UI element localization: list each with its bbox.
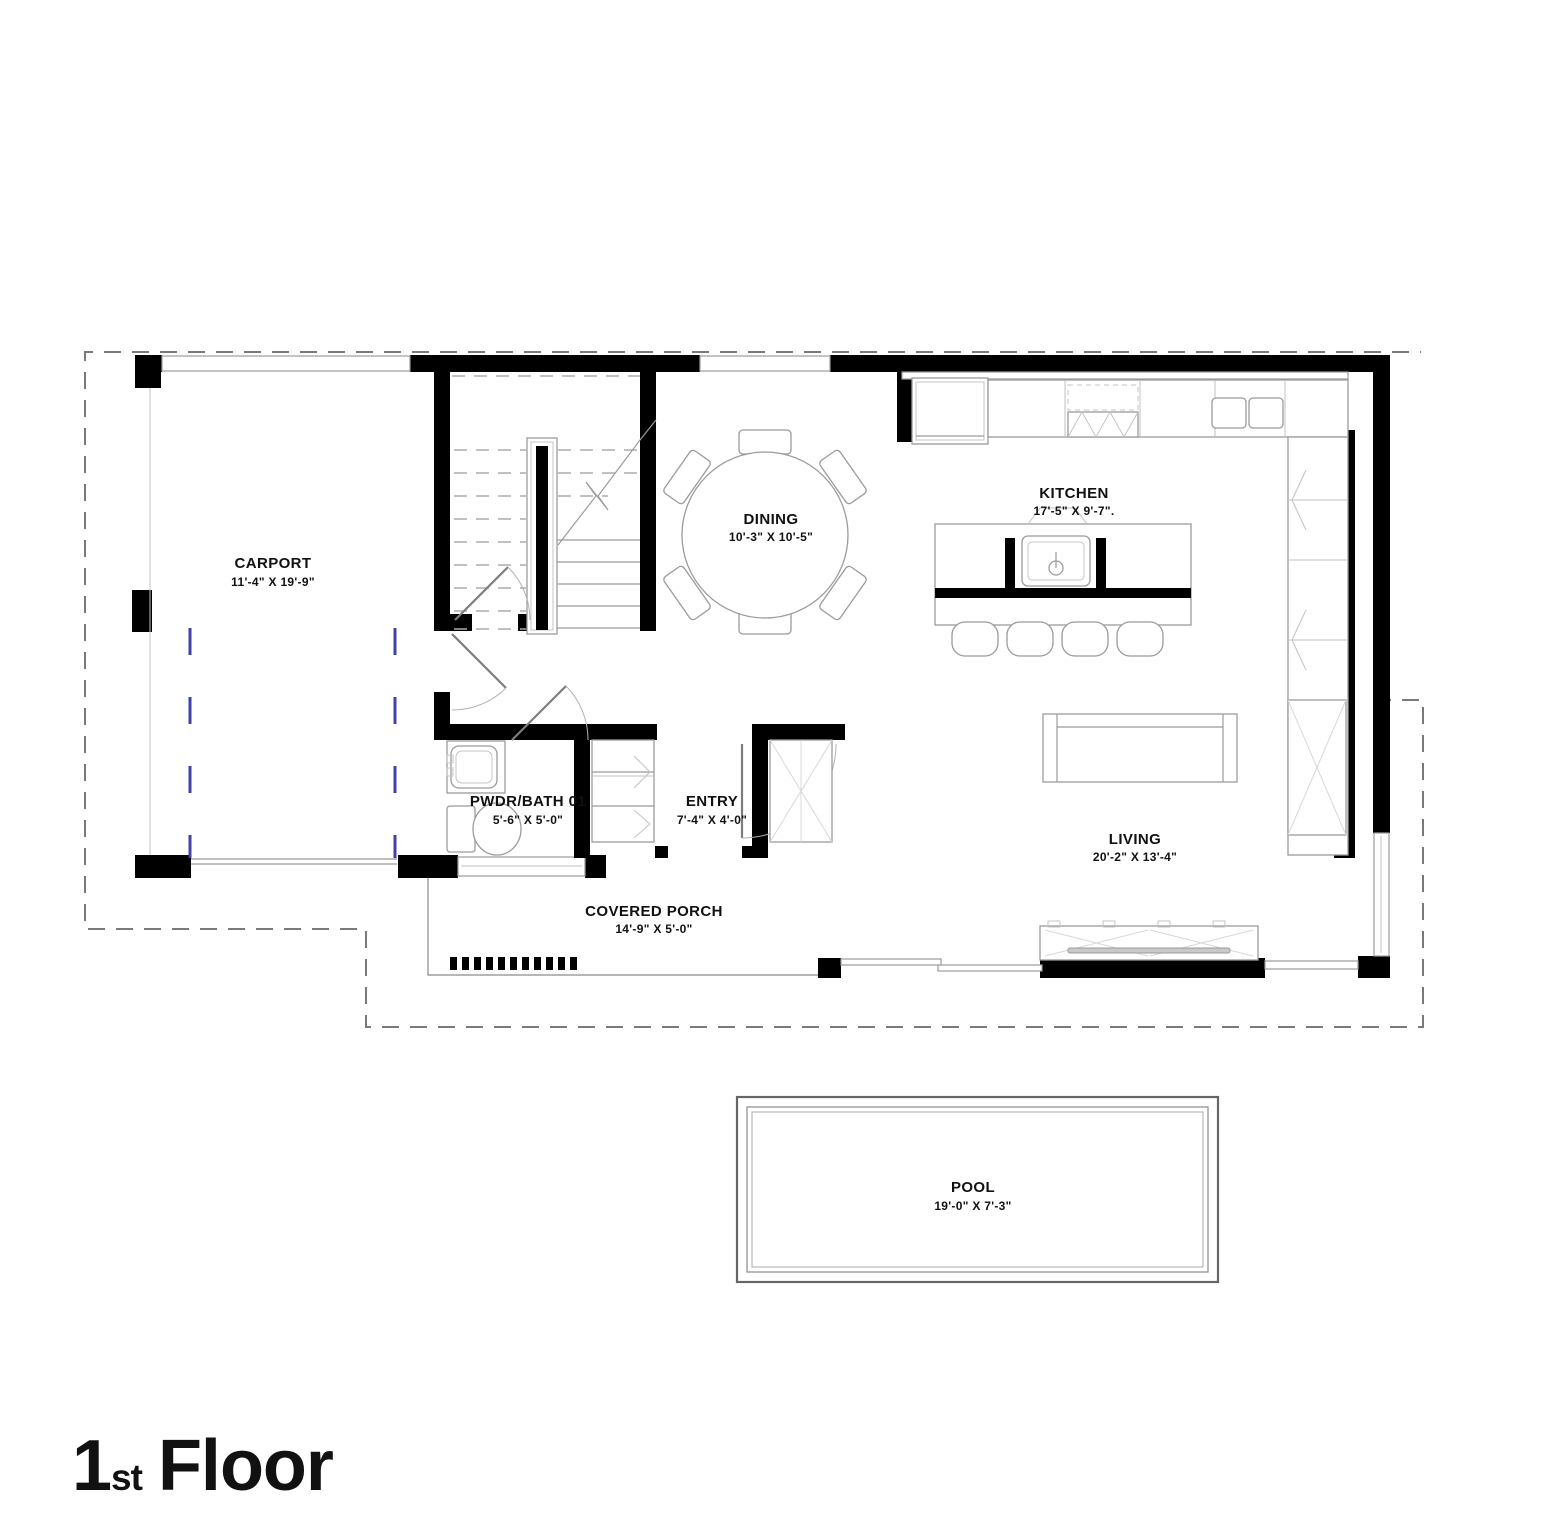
carport-markings <box>190 628 395 858</box>
room-dims-carport: 11'-4" X 19'-9" <box>231 575 315 589</box>
carport-door <box>452 634 506 688</box>
sheet-title-word: Floor <box>158 1426 333 1506</box>
toilet-bowl <box>473 803 521 855</box>
bar-stool <box>1007 622 1053 656</box>
kitchen-furniture <box>912 378 1348 855</box>
room-label-pool: POOL <box>951 1179 995 1196</box>
room-dims-pwdr-bath: 5'-6" X 5'-0" <box>493 813 563 827</box>
room-label-living: LIVING <box>1109 831 1161 848</box>
room-dims-pool: 19'-0" X 7'-3" <box>934 1199 1011 1213</box>
room-dims-dining: 10'-3" X 10'-5" <box>729 530 813 544</box>
media-console <box>1040 926 1258 960</box>
hall-closet <box>592 740 654 842</box>
room-dims-living: 20'-2" X 13'-4" <box>1093 850 1177 864</box>
dining-window <box>700 356 830 371</box>
bar-stool <box>1117 622 1163 656</box>
tv <box>1068 948 1230 953</box>
sliding-door-panel-2 <box>938 965 1042 971</box>
room-label-kitchen: KITCHEN <box>1039 485 1108 502</box>
sheet-title: 1stFloor <box>72 1430 333 1502</box>
living-rear-window <box>1265 961 1358 969</box>
room-label-dining: DINING <box>744 511 799 528</box>
bar-stool <box>1062 622 1108 656</box>
toilet-tank <box>447 806 475 852</box>
floor-plan-sheet: CARPORT 11'-4" X 19'-9" DINING 10'-3" X … <box>0 0 1545 1536</box>
stair-door <box>455 567 508 620</box>
sofa <box>1043 714 1237 782</box>
room-dims-kitchen: 17'-5" X 9'-7". <box>1034 504 1115 518</box>
kitchen-sink <box>1212 398 1246 428</box>
room-dims-covered-porch: 14'-9" X 5'-0" <box>615 922 692 936</box>
room-label-carport: CARPORT <box>235 555 312 572</box>
refrigerator <box>912 378 988 444</box>
carport-window <box>162 356 410 371</box>
bar-stool <box>952 622 998 656</box>
staircase <box>452 376 656 634</box>
sliding-door-panel-1 <box>841 959 941 965</box>
room-label-covered-porch: COVERED PORCH <box>585 903 723 920</box>
room-label-pwdr-bath: PWDR/BATH 01 <box>470 793 586 810</box>
room-dims-entry: 7'-4" X 4'-0" <box>677 813 747 827</box>
room-label-entry: ENTRY <box>686 793 738 810</box>
living-furniture <box>1040 700 1346 960</box>
kitchen-counter <box>988 380 1348 437</box>
porch-screen-hatch <box>450 957 577 970</box>
floor-plan-svg: CARPORT 11'-4" X 19'-9" DINING 10'-3" X … <box>0 0 1545 1536</box>
sheet-title-ordinal: st <box>111 1457 142 1498</box>
dining-chair <box>739 430 791 454</box>
sheet-title-number: 1 <box>72 1426 111 1506</box>
